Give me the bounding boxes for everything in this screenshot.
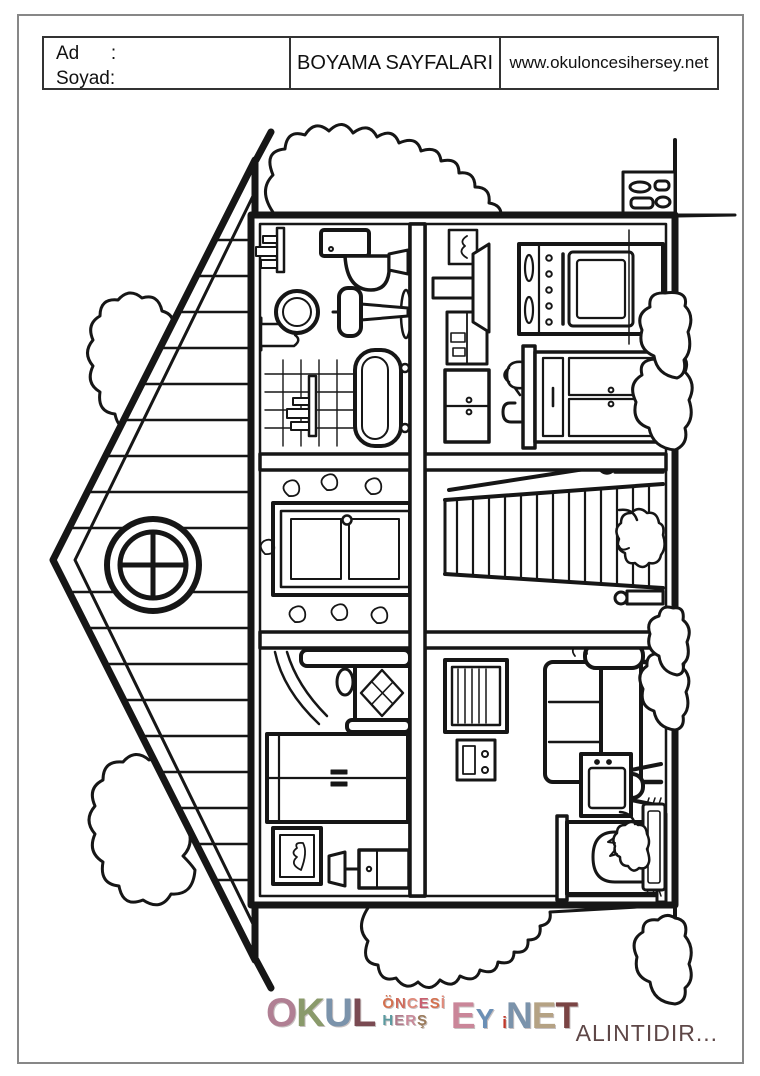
attribution-text: ALINTIDIR... [576,1020,718,1047]
header-table: Ad : Soyad: BOYAMA SAYFALARI www.okulonc… [42,36,719,90]
logo-letter: E [394,1013,405,1030]
logo-letter: O [266,991,296,1035]
name-label: Ad : [56,41,289,66]
logo-letter: E [451,1001,476,1031]
logo-letter: Ö [382,996,395,1013]
logo-letter: K [296,991,324,1035]
logo-word-okul: OKUL [266,997,375,1031]
logo-word-net: iNET [502,1001,577,1031]
logo-word-hersey: HERŞ [382,1013,446,1030]
header-cell-title: BOYAMA SAYFALARI [289,38,499,88]
footer-logo: OKUL ÖNCESİ HERŞ EY iNET [266,996,577,1031]
logo-word-oncesi: ÖNCESİ [382,996,446,1013]
page-border [17,14,744,1064]
logo-letter: L [352,991,375,1035]
logo-letter: H [382,1013,394,1030]
logo-letter: C [407,996,419,1013]
worksheet-page: Ad : Soyad: BOYAMA SAYFALARI www.okulonc… [0,0,760,1076]
logo-letter: Ş [417,1013,428,1030]
logo-word-stack: ÖNCESİ HERŞ [382,996,446,1029]
logo-letter: İ [441,996,446,1013]
logo-word-ey: EY [451,1001,494,1031]
website-text: www.okuloncesihersey.net [509,53,708,73]
logo-letter: T [555,1001,577,1031]
logo-letter: U [324,991,352,1035]
header-cell-website: www.okuloncesihersey.net [499,38,717,88]
surname-label: Soyad: [56,66,289,91]
logo-letter: N [506,1001,532,1031]
logo-letter: Y [476,1007,495,1031]
page-title: BOYAMA SAYFALARI [297,52,493,75]
logo-letter: R [405,1013,417,1030]
logo-letter: E [532,1001,556,1031]
logo-letter: S [430,996,441,1013]
logo-letter: N [395,996,407,1013]
logo-letter: E [419,996,430,1013]
header-cell-name: Ad : Soyad: [44,38,289,88]
